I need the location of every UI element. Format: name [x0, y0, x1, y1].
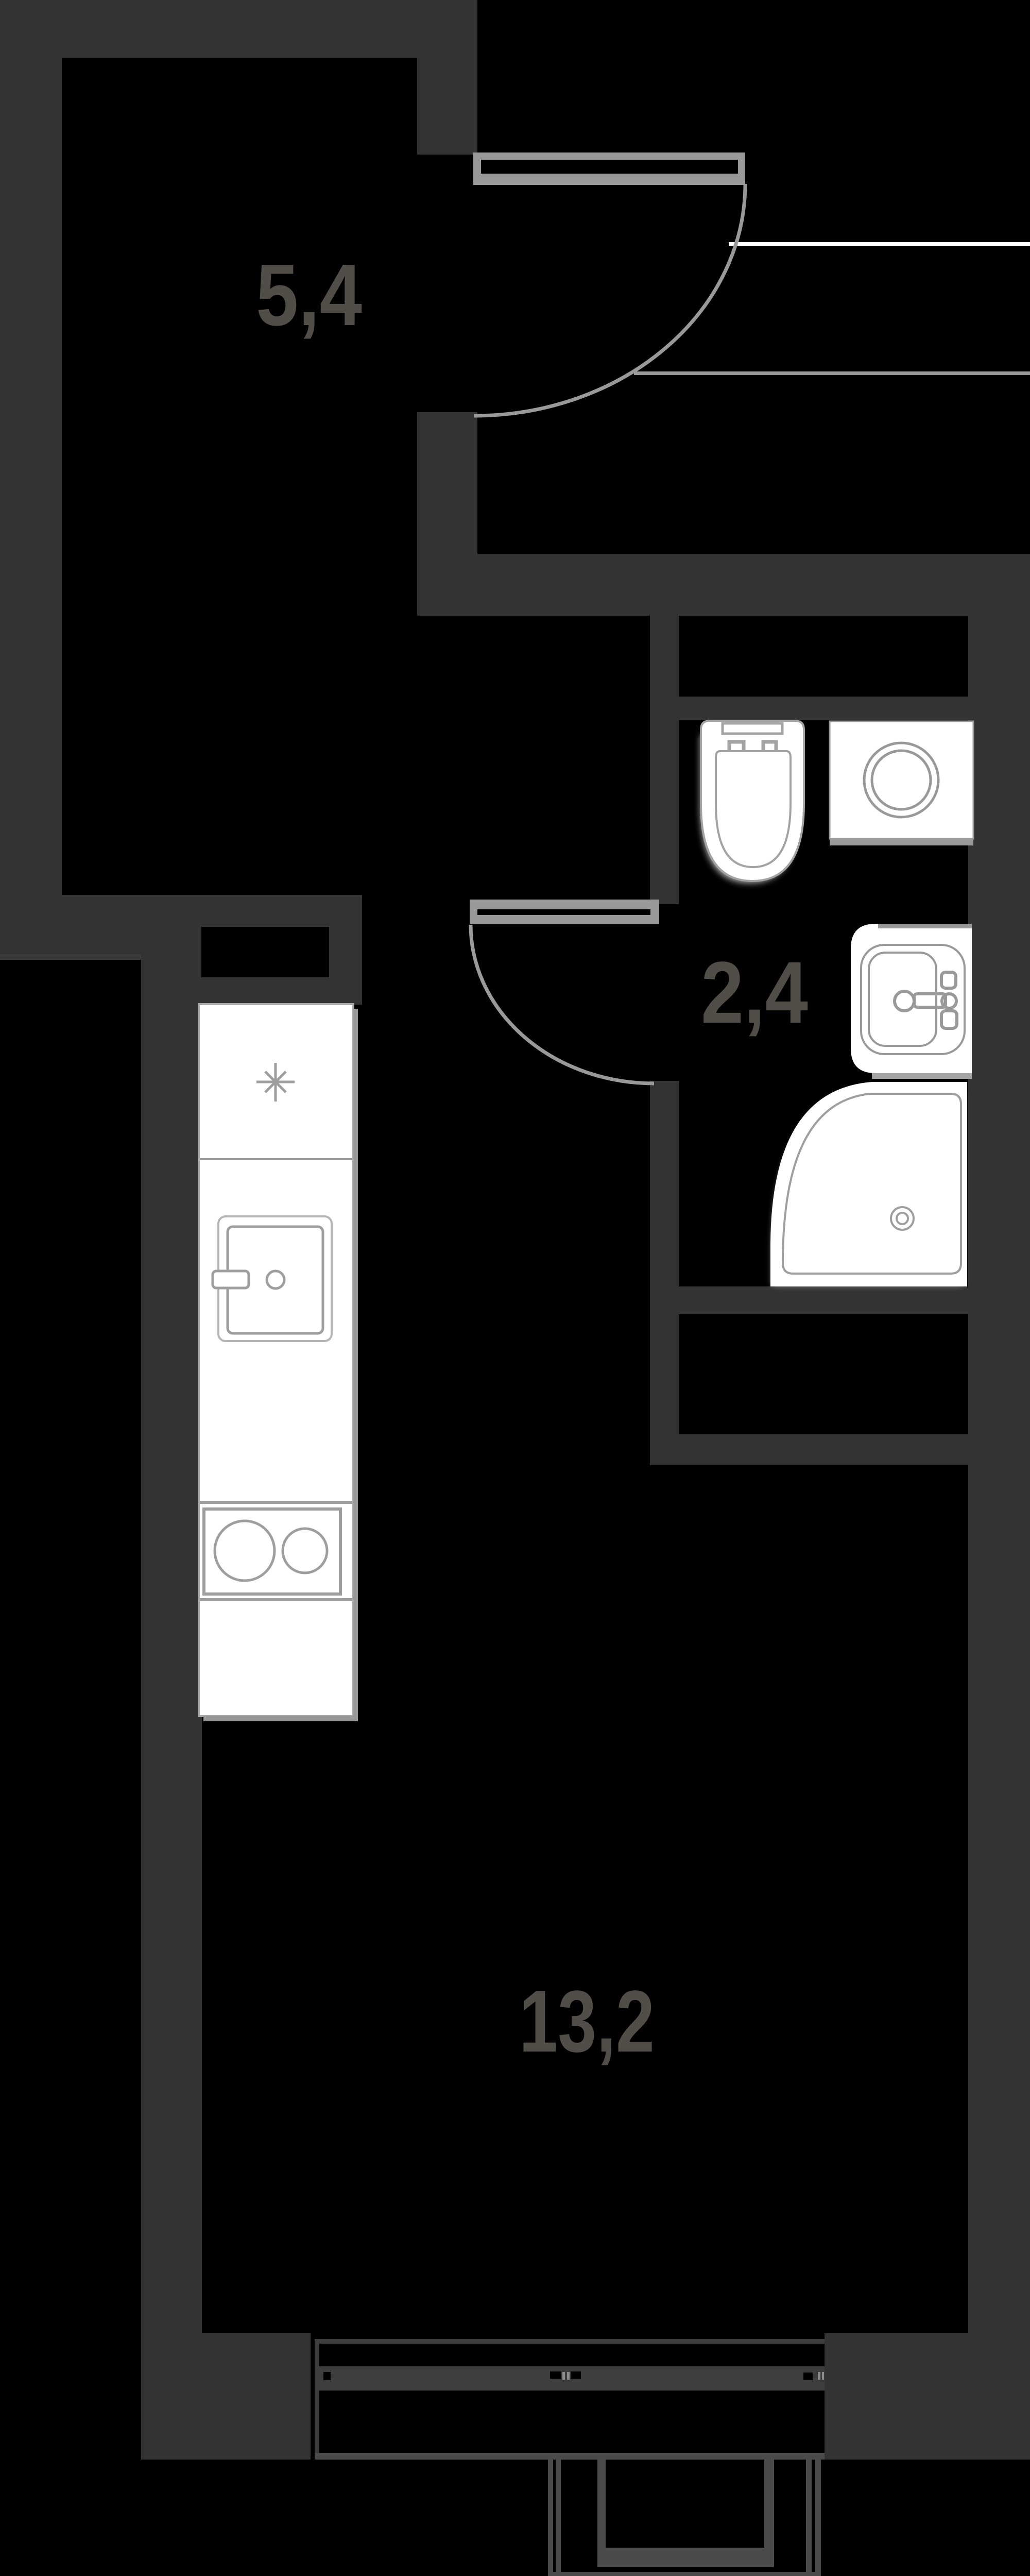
svg-text:13,2: 13,2 [519, 1973, 655, 2071]
svg-text:5,4: 5,4 [256, 246, 362, 344]
svg-text:2,4: 2,4 [701, 944, 808, 1042]
